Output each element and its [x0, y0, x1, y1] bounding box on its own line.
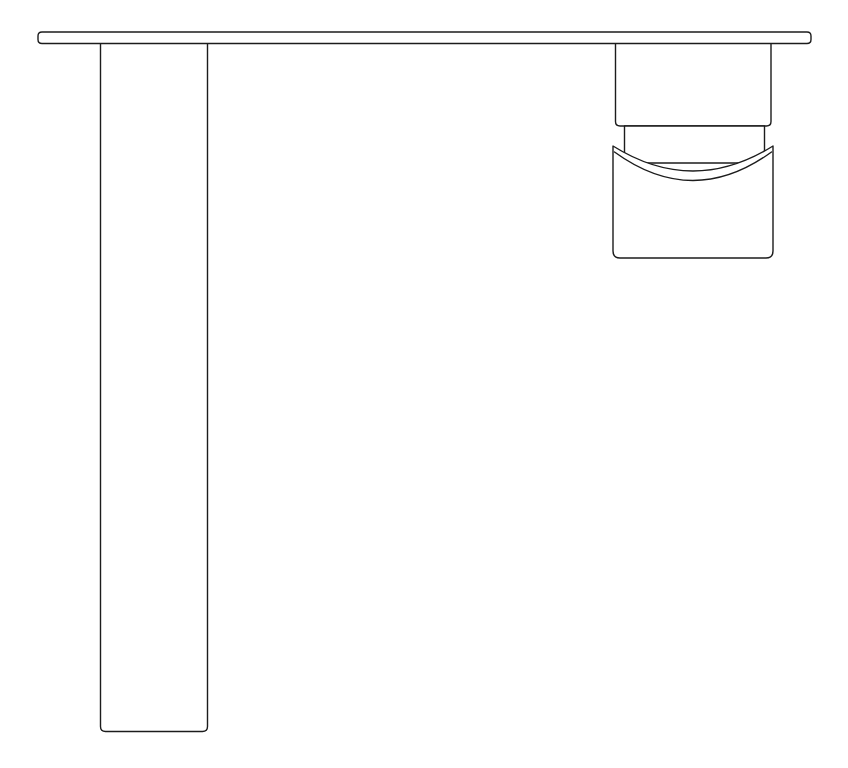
lever-handle-outline: [101, 39, 208, 732]
spout-body-outline: [616, 39, 772, 126]
tap-elevation-line-drawing: [0, 0, 848, 768]
technical-drawing-canvas: [0, 0, 848, 768]
spout-neck-outline: [625, 126, 765, 163]
mounting-plate-outline: [38, 32, 811, 44]
